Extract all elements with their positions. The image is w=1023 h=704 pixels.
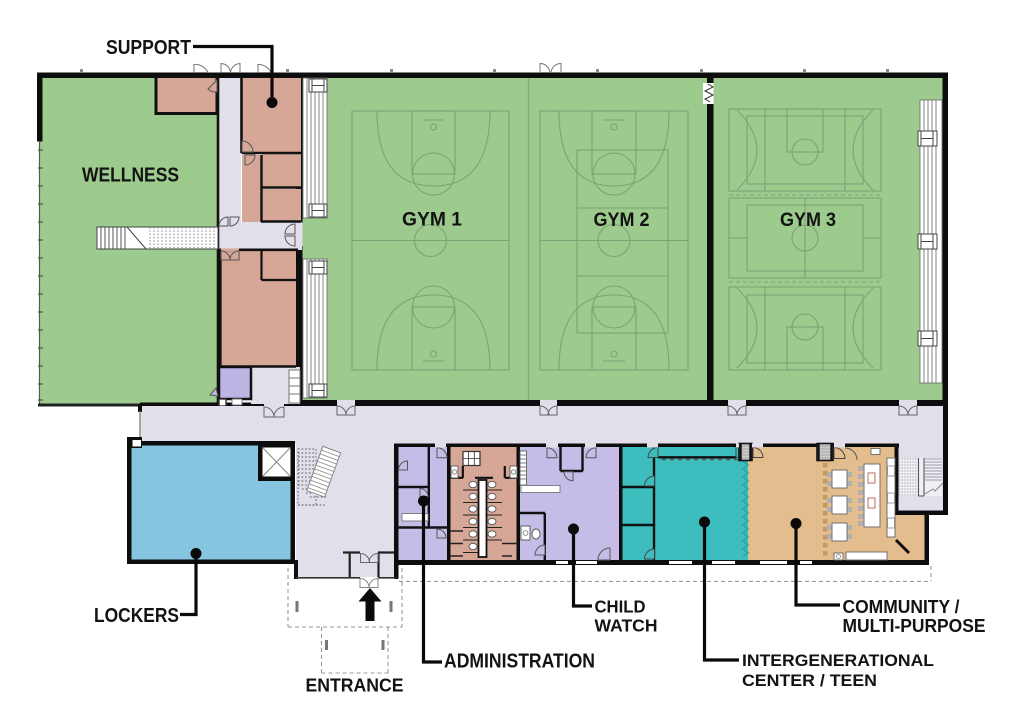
svg-text:SUPPORT: SUPPORT [106, 37, 191, 59]
svg-text:GYM 2: GYM 2 [594, 210, 650, 231]
svg-text:COMMUNITY /: COMMUNITY / [843, 596, 960, 617]
svg-text:MULTI-PURPOSE: MULTI-PURPOSE [843, 615, 986, 636]
svg-text:GYM 3: GYM 3 [780, 210, 836, 231]
svg-text:CHILD: CHILD [595, 597, 646, 617]
svg-text:CENTER / TEEN: CENTER / TEEN [742, 671, 877, 690]
svg-text:ADMINISTRATION: ADMINISTRATION [444, 651, 595, 673]
svg-text:ENTRANCE: ENTRANCE [306, 675, 404, 696]
svg-text:LOCKERS: LOCKERS [94, 605, 179, 627]
svg-text:INTERGENERATIONAL: INTERGENERATIONAL [742, 651, 934, 670]
svg-text:WELLNESS: WELLNESS [82, 165, 179, 187]
svg-text:WATCH: WATCH [595, 616, 658, 636]
svg-text:GYM 1: GYM 1 [402, 210, 462, 231]
